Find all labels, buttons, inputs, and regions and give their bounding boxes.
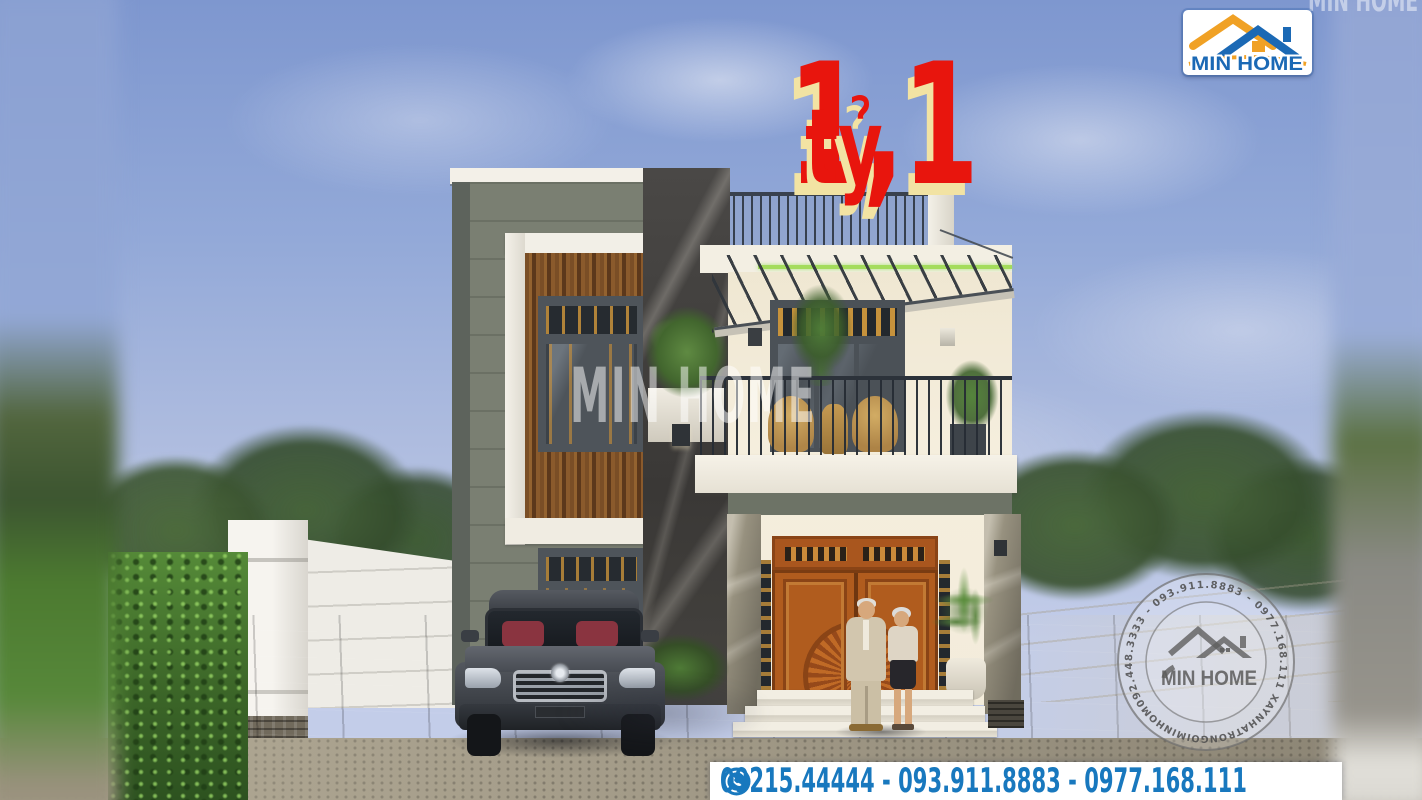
woman-skirt (890, 660, 916, 689)
price-overlay: 1,1tỷ (788, 50, 1184, 200)
price-unit: tỷ (805, 72, 883, 222)
left-bokeh-blur (0, 0, 118, 800)
woman-head (894, 611, 909, 627)
stone-step-base (988, 700, 1024, 728)
car-wheel (467, 714, 501, 756)
right-bokeh-blur (1332, 0, 1422, 800)
house-logo-icon: MIN HOME (1183, 10, 1312, 75)
watermark-brand-text: MIN HOME (1161, 667, 1257, 690)
top-corner-watermark: MIN HOME (1308, 0, 1389, 26)
woman-shoes (892, 724, 914, 730)
logo-chimney (1283, 27, 1291, 42)
architecture-render: MIN HOME 1,1tỷ MIN HOME MIN HOME 092.448… (0, 0, 1422, 800)
white-frame-top (505, 233, 645, 253)
car-mirror (641, 630, 659, 642)
door-sidelight (760, 560, 771, 690)
car-windshield (485, 608, 643, 650)
white-frame-bottom (505, 518, 645, 544)
man-shirt (863, 620, 869, 650)
man-shoes (849, 724, 883, 731)
wall-lamp (748, 328, 762, 346)
min-home-logo: MIN HOME (1183, 10, 1312, 75)
woman-blouse (888, 626, 918, 662)
logo-brand-text: MIN HOME (1191, 54, 1303, 75)
circular-watermark: 092.448.3333 - 093.911.8883 - 0977.168.1… (1112, 568, 1300, 756)
wall-lamp (994, 540, 1007, 556)
watermark-inner-ring (1146, 602, 1266, 722)
wall-lamp (940, 328, 955, 346)
window-transom (546, 557, 637, 581)
man-trouser-shadow (865, 686, 868, 725)
green-hedge (108, 552, 248, 800)
window-transom (546, 306, 637, 334)
woman-leg (905, 689, 912, 725)
potted-palm (916, 556, 1012, 666)
elderly-couple (833, 598, 929, 740)
logo-window (1252, 41, 1265, 52)
man-head (858, 601, 875, 619)
car-seat (502, 621, 544, 647)
watermark-window-dot (1220, 648, 1224, 652)
entrance-transom (772, 536, 938, 570)
watermark-window-dot (1226, 648, 1230, 652)
watermark-chimney (1240, 636, 1246, 648)
cast-shadow (560, 678, 770, 748)
contact-numbers: 09215.44444 - 093.911.8883 - 0977.168.11… (720, 762, 1247, 800)
woman-leg (894, 689, 901, 725)
balcony-underside (728, 493, 1012, 515)
car-seat (576, 621, 618, 647)
circular-watermark-stamp: 092.448.3333 - 093.911.8883 - 0977.168.1… (1112, 568, 1300, 756)
center-watermark: MIN HOME (570, 360, 778, 432)
transom-slots (785, 547, 847, 561)
white-frame-left (505, 233, 525, 545)
balcony-slab (695, 455, 1017, 493)
contact-phone-bar: 09215.44444 - 093.911.8883 - 0977.168.11… (710, 762, 1342, 800)
car-headlight (465, 668, 501, 688)
car-mirror (461, 630, 479, 642)
